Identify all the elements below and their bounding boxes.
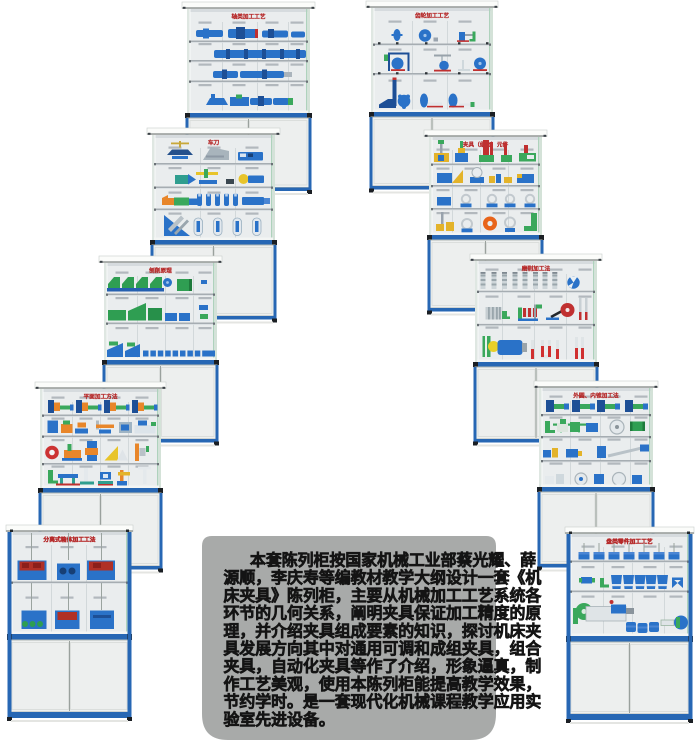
svg-text:车刀: 车刀	[208, 139, 220, 147]
svg-text:源顺，李庆寿等编教材教学大纲设计一套《机: 源顺，李庆寿等编教材教学大纲设计一套《机	[224, 568, 542, 587]
svg-text:环节的几何关系，阐明夹具保证加工精度的原: 环节的几何关系，阐明夹具保证加工精度的原	[224, 604, 542, 623]
svg-text:轴类加工工艺: 轴类加工工艺	[231, 13, 265, 21]
svg-text:床夹具》陈列柜，主要从机械加工工艺系统各: 床夹具》陈列柜，主要从机械加工工艺系统各	[224, 586, 543, 605]
svg-text:夹具，自动化夹具等作了介绍，形象逼真，制: 夹具，自动化夹具等作了介绍，形象逼真，制	[224, 657, 542, 676]
svg-text:平面加工方法: 平面加工方法	[83, 393, 117, 401]
svg-text:理，并介绍夹具组成要素的知识，探讨机床夹: 理，并介绍夹具组成要素的知识，探讨机床夹	[224, 621, 542, 640]
svg-text:齿轮加工工艺: 齿轮加工工艺	[415, 12, 449, 20]
svg-text:节约学时。是一套现代化机械课程教学应用实: 节约学时。是一套现代化机械课程教学应用实	[224, 692, 542, 711]
svg-text:盘类零件加工工艺: 盘类零件加工工艺	[606, 538, 653, 546]
svg-text:磨削加工法: 磨削加工法	[521, 265, 551, 273]
svg-text:作工艺美观，使用本陈列柜能提高教学效果，: 作工艺美观，使用本陈列柜能提高教学效果，	[224, 674, 542, 693]
svg-text:验室先进设备。: 验室先进设备。	[224, 710, 335, 729]
svg-text:具发展方向其中对通用可调和成组夹具，组合: 具发展方向其中对通用可调和成组夹具，组合	[224, 639, 542, 658]
svg-text:外圆、内锥加工法: 外圆、内锥加工法	[572, 392, 619, 400]
svg-text:本套陈列柜按国家机械工业部蔡光耀、薛: 本套陈列柜按国家机械工业部蔡光耀、薛	[250, 551, 536, 570]
svg-text:分离式箱体加工工法: 分离式箱体加工工法	[43, 536, 95, 544]
svg-text:刨削原理: 刨削原理	[148, 267, 172, 275]
